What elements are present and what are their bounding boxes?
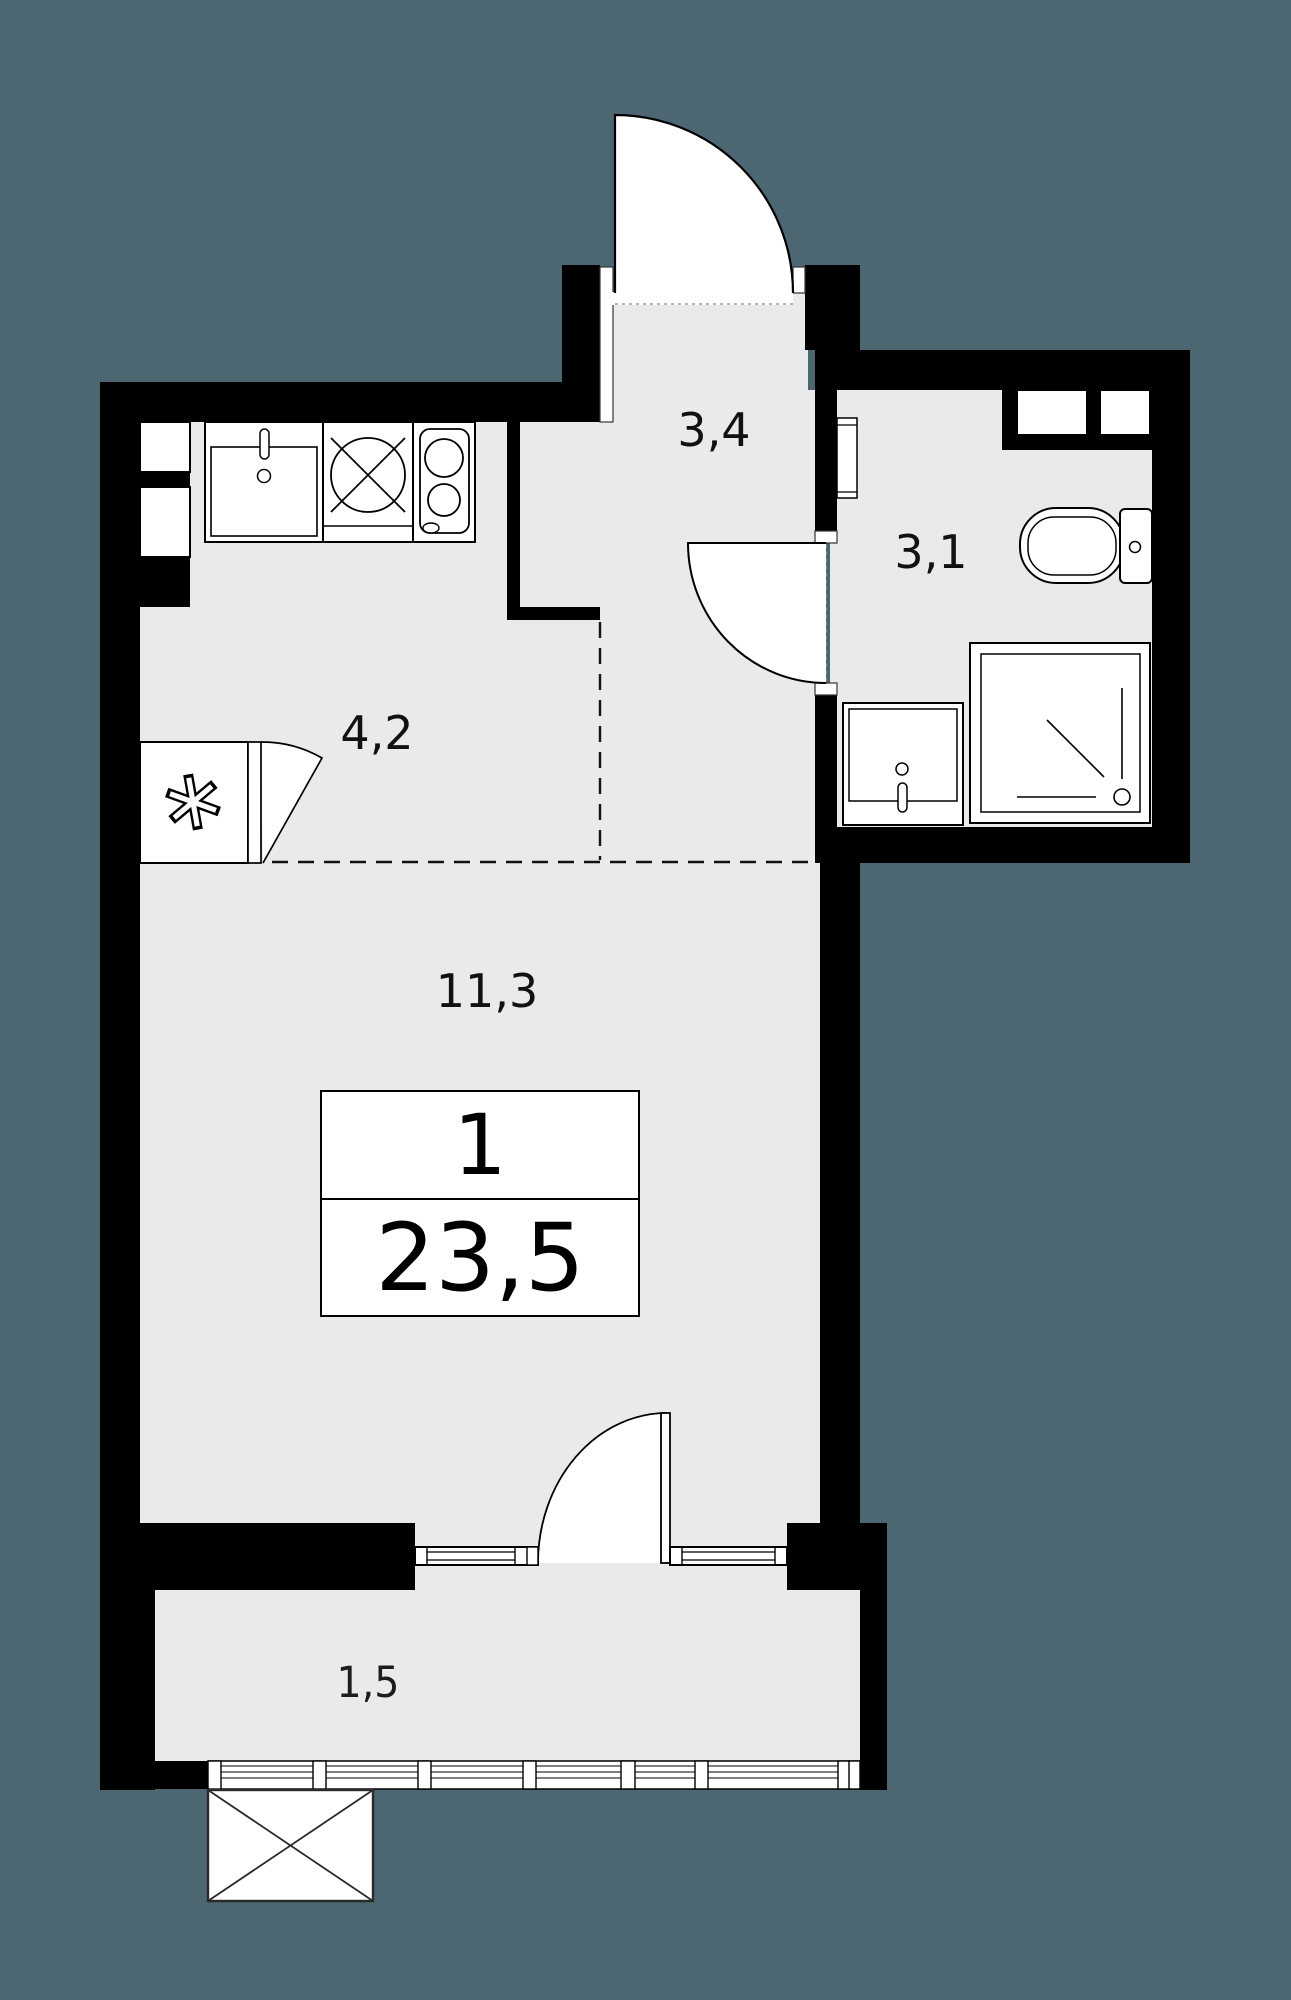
toilet <box>1020 508 1152 583</box>
kitchen-sink <box>205 422 323 542</box>
shaft-niche-bath-2 <box>1100 390 1150 435</box>
basin-faucet-icon <box>898 783 907 812</box>
towel-radiator <box>837 418 857 498</box>
summary-box: 1 23,5 <box>320 1090 640 1317</box>
area-label-balcony: 1,5 <box>337 1658 400 1708</box>
shaft-niche-kitchen-1 <box>140 422 190 472</box>
area-label-living-room: 11,3 <box>436 964 538 1018</box>
shower <box>970 643 1150 823</box>
flush-button-icon <box>1130 542 1141 553</box>
washing-machine <box>323 422 413 542</box>
floor-hallway-top <box>612 292 808 392</box>
kitchen-faucet-icon <box>260 429 269 459</box>
area-label-bathroom: 3,1 <box>894 525 967 579</box>
balcony-door-leaf <box>661 1413 670 1563</box>
shaft-niche-kitchen-2 <box>140 487 190 557</box>
entrance-door-swing <box>615 115 793 293</box>
rooms-count: 1 <box>322 1092 638 1200</box>
cooktop-icon <box>413 422 475 542</box>
bath-jamb-bottom <box>815 683 837 695</box>
entrance-jamb-right <box>793 267 805 293</box>
area-label-kitchen: 4,2 <box>340 706 413 760</box>
entrance-door <box>615 115 793 293</box>
balcony-glazing <box>208 1761 860 1789</box>
floorplan-canvas: 3,4 3,1 4,2 11,3 1,5 1 23,5 <box>0 0 1291 2000</box>
wash-basin <box>843 703 963 825</box>
exterior-basket <box>208 1790 373 1901</box>
bath-jamb-top <box>815 531 837 543</box>
floor-balcony <box>155 1590 860 1762</box>
entrance-jamb-left <box>600 267 613 422</box>
area-label-hallway: 3,4 <box>677 403 750 457</box>
total-area: 23,5 <box>322 1200 638 1315</box>
shower-drain-icon <box>1114 789 1130 805</box>
shaft-niche-bath-1 <box>1017 390 1087 435</box>
floor-window-sill <box>415 1563 787 1591</box>
floorplan-drawing <box>0 0 1291 2000</box>
window-left <box>415 1547 538 1565</box>
window-right <box>670 1547 787 1565</box>
entrance-threshold <box>612 292 793 305</box>
fridge-door-leaf <box>248 742 261 863</box>
